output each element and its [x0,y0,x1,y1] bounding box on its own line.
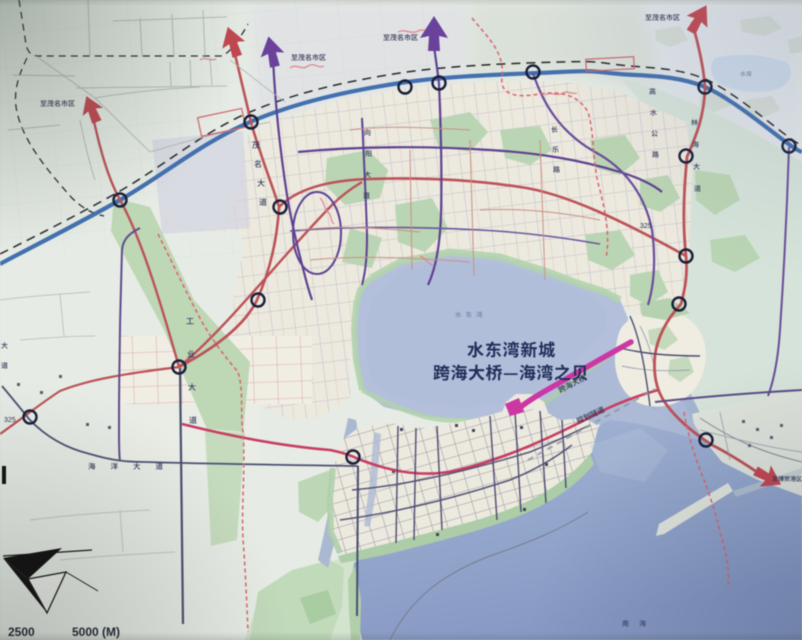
svg-text:5000 (M): 5000 (M) [72,625,120,639]
svg-text:2500: 2500 [8,625,35,639]
svg-text:325: 325 [640,223,652,230]
svg-text:325: 325 [4,417,16,424]
